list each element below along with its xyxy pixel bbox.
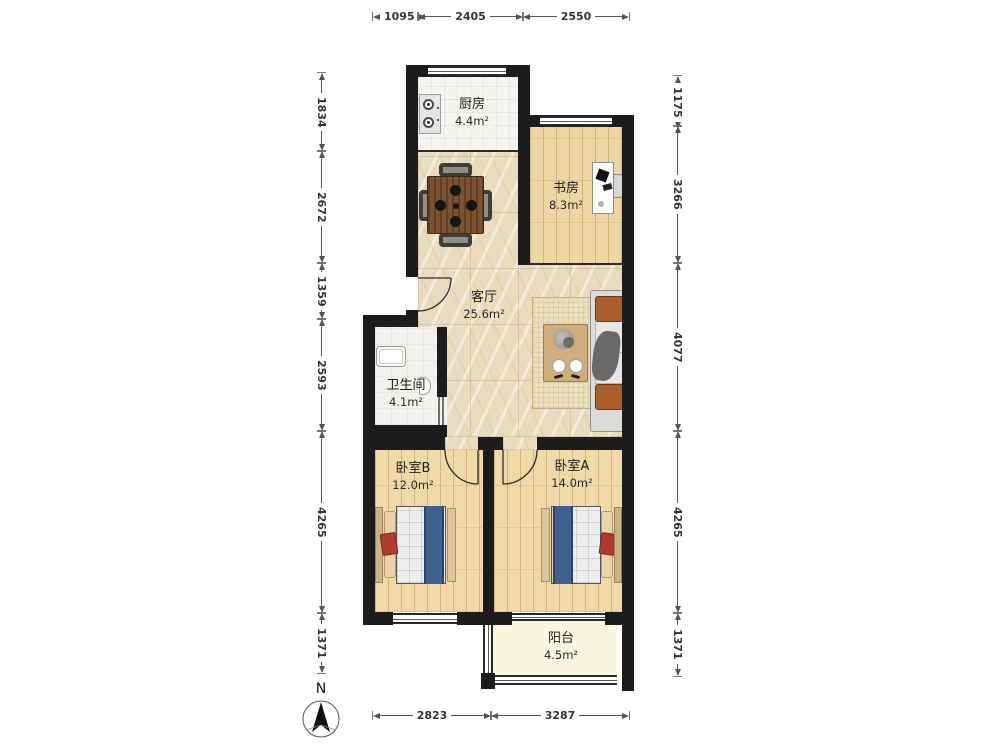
dimension-top-3: 2550 (522, 12, 630, 21)
foot-bench (541, 508, 550, 582)
room-name: 阳台 (544, 631, 578, 648)
spoon-icon (571, 374, 580, 379)
wall (483, 450, 494, 612)
dimension-value: 2823 (413, 710, 452, 721)
bed-runner (424, 506, 444, 584)
dining-table (427, 176, 484, 234)
wall (406, 65, 418, 152)
arrow-up-icon (675, 431, 681, 438)
dimension-left-4: 2593 (317, 318, 326, 432)
dimension-bottom-2: 3287 (490, 711, 630, 720)
room-area: 12.0m² (392, 478, 433, 493)
plate (450, 216, 461, 227)
wall (478, 437, 503, 450)
bathroom-door-opening (437, 397, 447, 425)
door-threshold-a (503, 437, 537, 450)
wall (537, 437, 622, 450)
dimension-value: 1371 (316, 624, 327, 663)
stove (419, 94, 441, 134)
arrow-left-icon (418, 14, 425, 20)
bed-runner (553, 506, 573, 584)
wall (437, 327, 447, 397)
room-area: 25.6m² (463, 307, 504, 322)
room-area: 4.1m² (386, 395, 425, 410)
foot-bench (447, 508, 456, 582)
room-area: 4.5m² (544, 648, 578, 663)
dimension-right-4: 4265 (673, 430, 682, 614)
bathtub-basin (379, 349, 403, 364)
dimension-value: 1359 (316, 272, 327, 311)
room-label-bedroom-b: 卧室B 12.0m² (392, 461, 433, 493)
monitor-icon (595, 168, 609, 182)
dimension-value: 4265 (672, 503, 683, 542)
dimension-value: 1834 (316, 93, 327, 132)
arrow-up-icon (319, 613, 325, 620)
arrow-left-icon (523, 14, 530, 20)
stove-knob (437, 119, 439, 121)
arrow-up-icon (319, 431, 325, 438)
arrow-down-icon (675, 669, 681, 676)
room-area: 4.4m² (455, 114, 489, 129)
arrow-up-icon (319, 263, 325, 270)
arrow-right-icon (622, 713, 629, 719)
arrow-down-icon (319, 666, 325, 673)
room-label-living: 客厅 25.6m² (463, 290, 504, 322)
arrow-up-icon (675, 126, 681, 133)
wall (363, 437, 375, 625)
arrow-up-icon (319, 319, 325, 326)
desk (592, 162, 614, 214)
wall (494, 612, 512, 625)
dimension-value: 1095 (380, 11, 419, 22)
room-name: 厨房 (455, 97, 489, 114)
door-threshold-b (445, 437, 478, 450)
arrow-left-icon (373, 713, 380, 719)
wall (363, 612, 393, 625)
wall (363, 315, 375, 437)
dining-chair (439, 233, 472, 247)
room-label-balcony: 阳台 4.5m² (544, 631, 578, 663)
wall (406, 152, 418, 277)
dimension-value: 2672 (316, 188, 327, 227)
arrow-left-icon (491, 713, 498, 719)
spoon-icon (554, 374, 563, 379)
stove-burner-icon (423, 117, 434, 128)
dimension-right-3: 4077 (673, 262, 682, 432)
room-label-bathroom: 卫生间 4.1m² (386, 378, 425, 410)
dimension-value: 1371 (672, 625, 683, 664)
floor-plan-canvas: N 厨房 4.4m² 书房 8.3m² 客厅 25.6m² 卫生间 4.1m² … (0, 0, 1000, 750)
room-name: 客厅 (463, 290, 504, 307)
dimension-right-1: 1175 (673, 75, 682, 127)
wall (605, 612, 622, 625)
dimension-top-2: 2405 (417, 12, 524, 21)
room-area: 14.0m² (551, 476, 592, 491)
arrow-up-icon (675, 613, 681, 620)
dimension-bottom-1: 2823 (372, 711, 492, 720)
dimension-left-5: 4265 (317, 430, 326, 614)
stove-knob (437, 107, 439, 109)
room-name: 书房 (549, 181, 583, 198)
plate (453, 203, 459, 209)
wall (363, 425, 447, 437)
wall (363, 437, 445, 450)
headboard (614, 507, 622, 583)
room-label-study: 书房 8.3m² (549, 181, 583, 213)
wall (622, 115, 634, 691)
dimension-value: 4077 (672, 328, 683, 367)
stove-burner-icon (423, 99, 434, 110)
study-window (540, 116, 612, 126)
dimension-left-1: 1834 (317, 72, 326, 152)
dimension-value: 1175 (672, 83, 683, 122)
room-name: 卧室B (392, 461, 433, 478)
wall (481, 673, 495, 689)
plant-icon (563, 337, 574, 348)
balcony-sliding-door (512, 613, 605, 621)
room-name: 卧室A (551, 459, 592, 476)
dimension-left-3: 1359 (317, 262, 326, 320)
dimension-right-2: 3266 (673, 125, 682, 264)
bed-a (541, 505, 622, 585)
dimension-left-6: 1371 (317, 612, 326, 674)
wall (518, 65, 530, 265)
coffee-table (543, 324, 588, 382)
bathroom-floor (375, 327, 437, 425)
balcony-side-window (483, 625, 493, 673)
arrow-right-icon (622, 14, 629, 20)
dimension-value: 4265 (316, 503, 327, 542)
dimension-top-1: 1095 (372, 12, 419, 21)
arrow-left-icon (373, 14, 380, 20)
dimension-value: 2593 (316, 356, 327, 395)
accent-pillow (380, 532, 399, 556)
plate (435, 200, 446, 211)
balcony-front-window (495, 675, 617, 685)
bedroom-b-window (393, 613, 457, 624)
kitchen-window (428, 66, 506, 76)
compass-icon (303, 701, 339, 737)
kitchen-open-boundary (418, 150, 518, 152)
room-name: 卫生间 (386, 378, 425, 395)
bed-b (375, 505, 456, 585)
dining-chair (439, 163, 472, 177)
room-area: 8.3m² (549, 198, 583, 213)
keyboard-icon (602, 183, 612, 191)
desk-plant-icon (598, 201, 604, 207)
arrow-up-icon (319, 151, 325, 158)
cup (569, 359, 583, 373)
arrow-up-icon (675, 263, 681, 270)
compass-north-label: N (316, 681, 326, 697)
room-label-bedroom-a: 卧室A 14.0m² (551, 459, 592, 491)
dimension-value: 3287 (541, 710, 580, 721)
arrow-up-icon (319, 73, 325, 80)
wall (363, 315, 418, 327)
study-open-boundary (518, 263, 622, 265)
dimension-right-5: 1371 (673, 612, 682, 677)
plate (450, 185, 461, 196)
room-label-kitchen: 厨房 4.4m² (455, 97, 489, 129)
arrow-up-icon (675, 76, 681, 83)
bathtub (376, 346, 406, 367)
dimension-value: 3266 (672, 175, 683, 214)
wall (457, 612, 494, 625)
dimension-value: 2405 (451, 11, 490, 22)
dimension-left-2: 2672 (317, 150, 326, 264)
plate (466, 200, 477, 211)
dimension-value: 2550 (557, 11, 596, 22)
cup (552, 359, 566, 373)
